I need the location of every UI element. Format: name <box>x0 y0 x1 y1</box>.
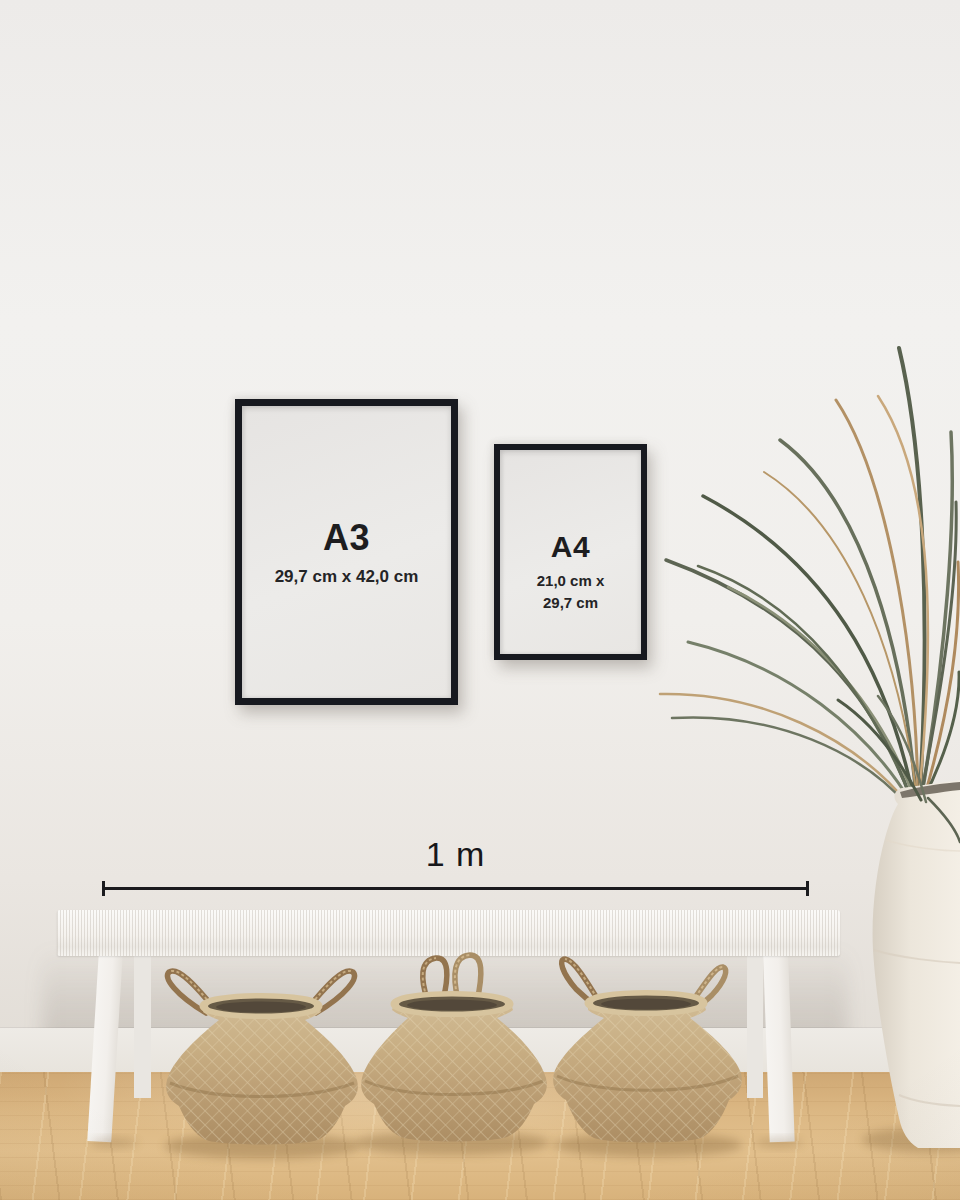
room-scene: A3 29,7 cm x 42,0 cm A4 21,0 cm x 29,7 c… <box>0 0 960 1200</box>
frame-a4-dimensions-line1: 21,0 cm x <box>537 572 605 589</box>
frame-a4-label: A4 <box>551 530 590 564</box>
bench-leg-right-back <box>747 950 763 1098</box>
bench-leg-left-back <box>134 950 151 1098</box>
frame-a3-label: A3 <box>323 517 370 559</box>
frame-a4-dimensions: 21,0 cm x 29,7 cm <box>537 570 605 615</box>
frame-a3-dimensions: 29,7 cm x 42,0 cm <box>275 567 419 587</box>
frame-a4-dimensions-line2: 29,7 cm <box>543 594 598 611</box>
frame-a4: A4 21,0 cm x 29,7 cm <box>494 444 647 660</box>
frame-a3: A3 29,7 cm x 42,0 cm <box>235 399 458 705</box>
scale-tick-right <box>806 881 809 896</box>
frame-a3-paper: A3 29,7 cm x 42,0 cm <box>242 406 451 698</box>
scale-tick-left <box>102 881 105 896</box>
frame-a4-paper: A4 21,0 cm x 29,7 cm <box>500 450 641 654</box>
bench-seat <box>57 910 840 956</box>
scale-line <box>103 887 808 890</box>
scale-label: 1 m <box>103 835 808 874</box>
